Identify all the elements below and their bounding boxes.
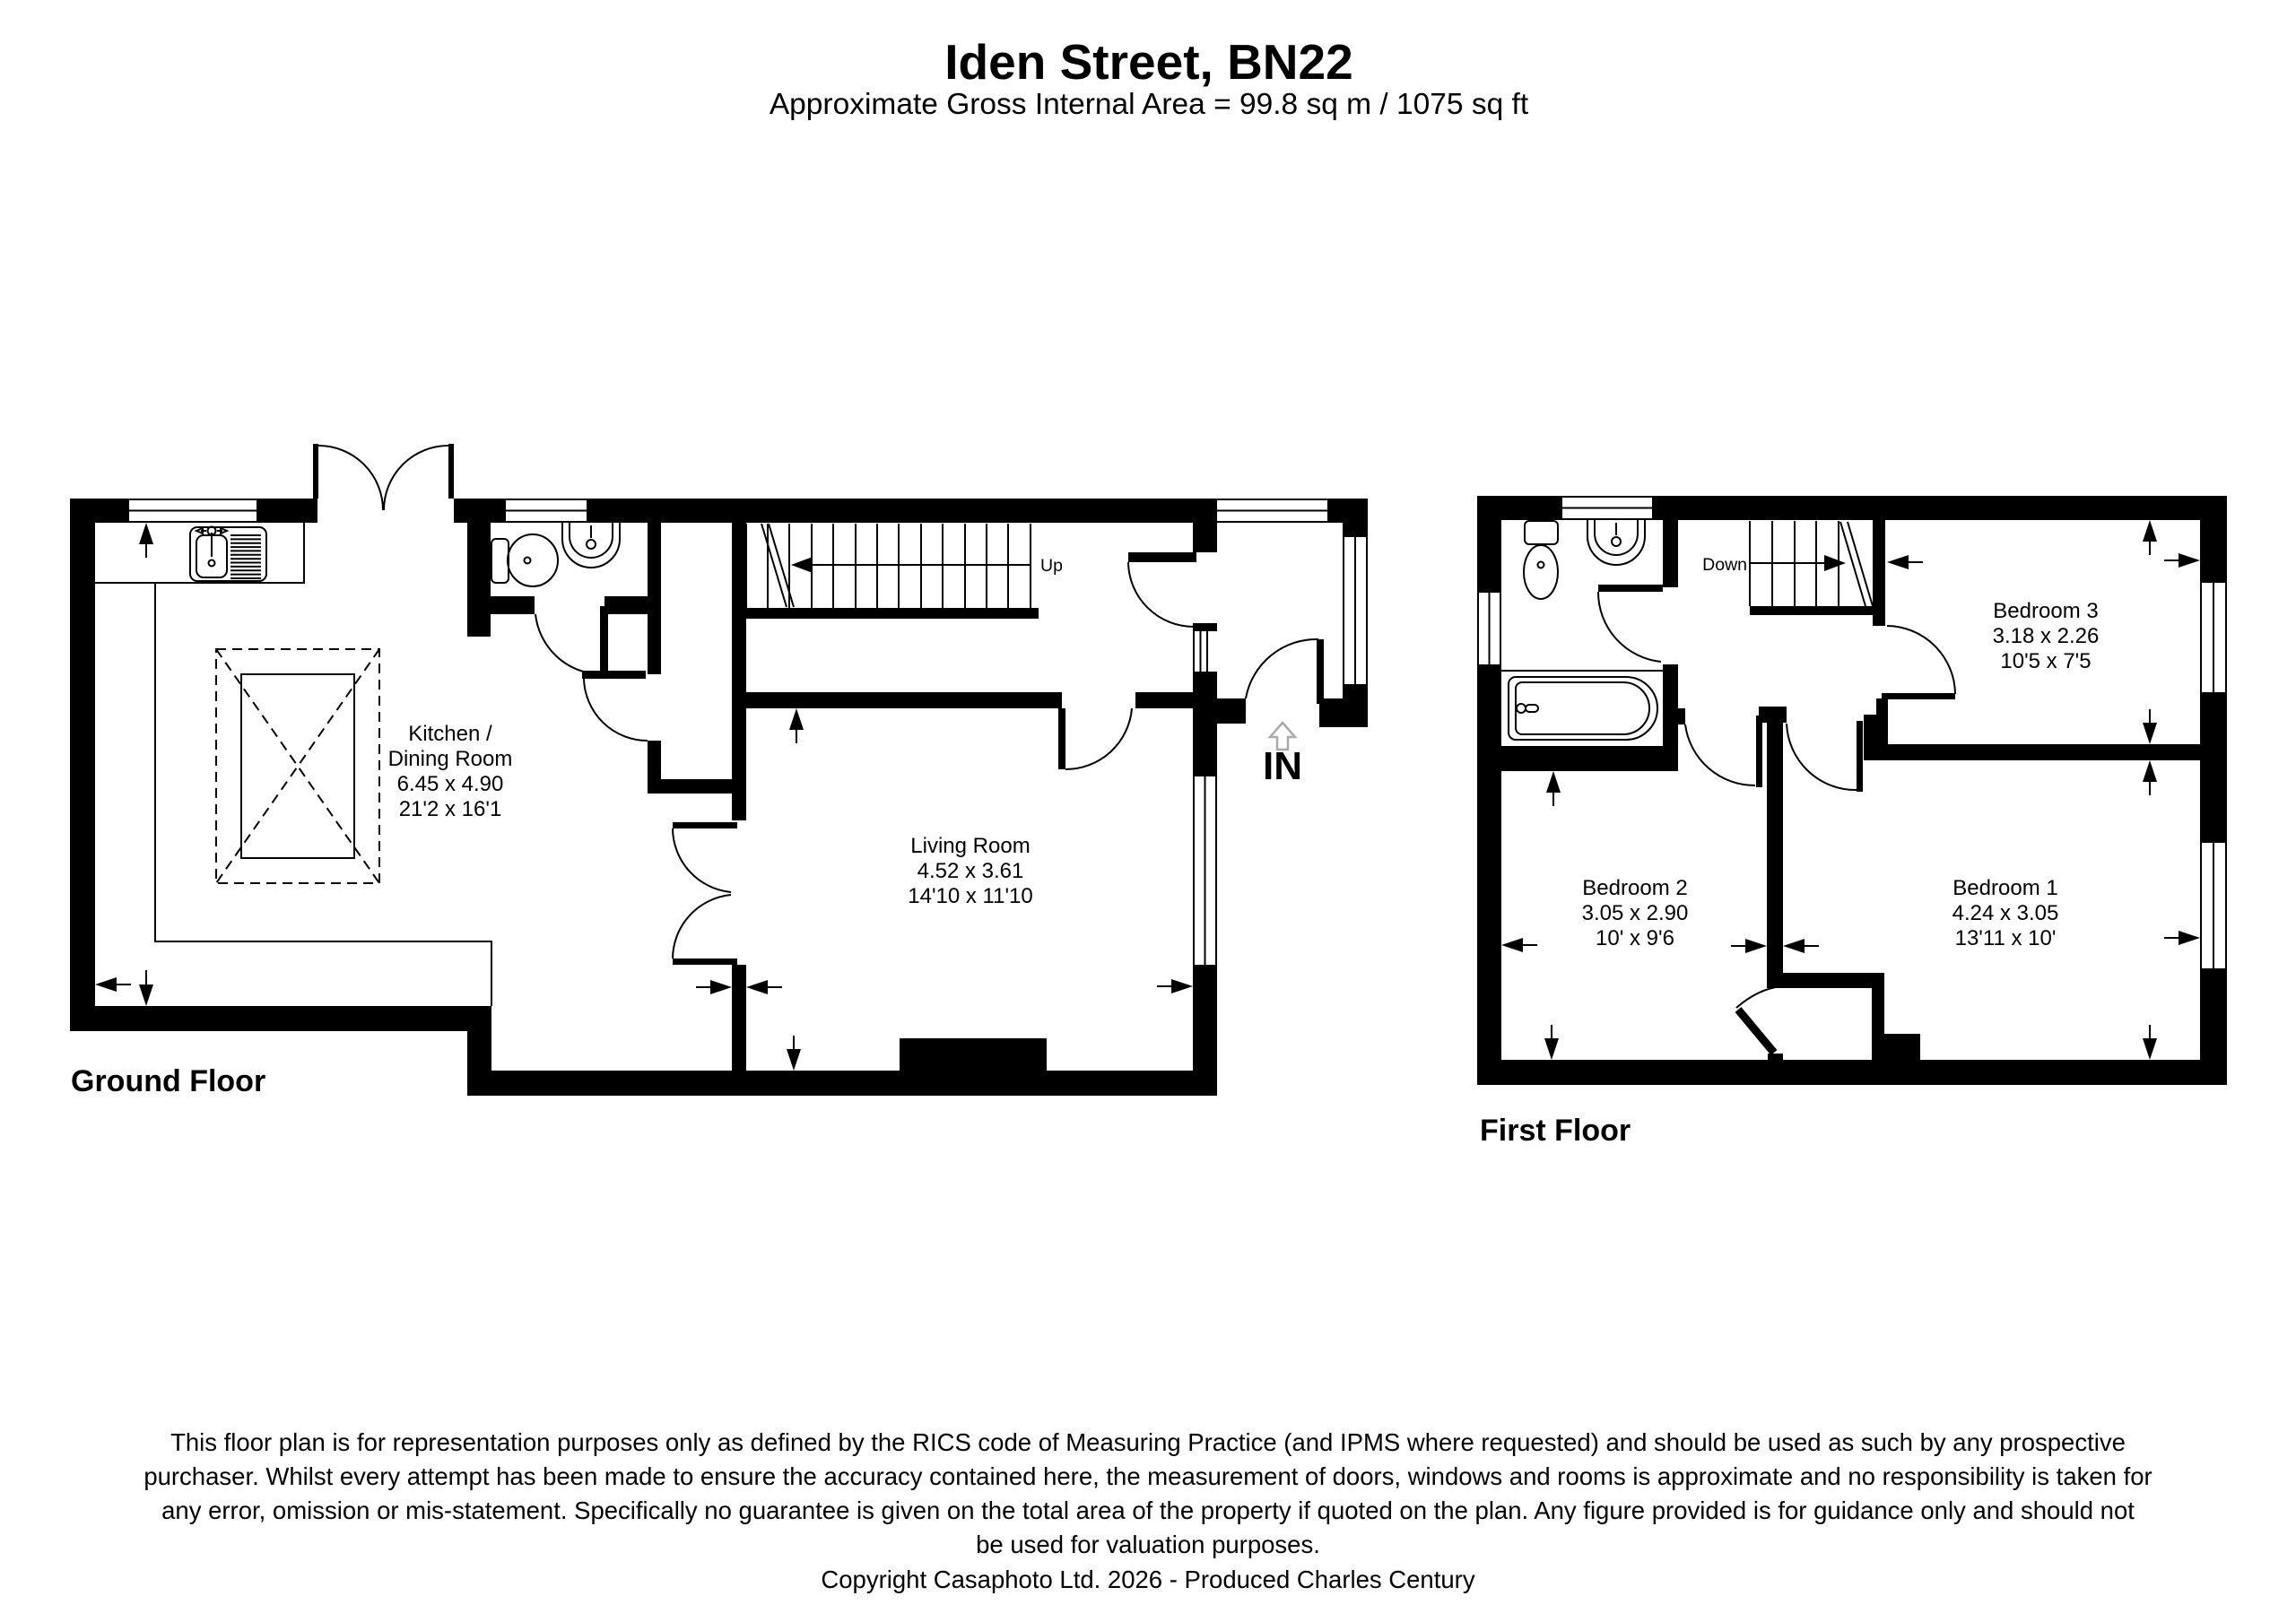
- svg-text:be used for valuation purposes: be used for valuation purposes.: [976, 1531, 1320, 1558]
- svg-text:3.18 x 2.26: 3.18 x 2.26: [1993, 624, 2100, 648]
- svg-text:Dining Room: Dining Room: [388, 747, 513, 771]
- svg-text:Up: Up: [1040, 556, 1063, 576]
- svg-text:Bedroom 3: Bedroom 3: [1993, 599, 2098, 623]
- svg-text:10'5 x 7'5: 10'5 x 7'5: [2000, 649, 2091, 673]
- svg-text:21'2 x 16'1: 21'2 x 16'1: [399, 797, 502, 821]
- svg-text:Kitchen /: Kitchen /: [408, 722, 492, 746]
- svg-text:Copyright Casaphoto Ltd. 2026: Copyright Casaphoto Ltd. 2026 - Produced…: [821, 1566, 1474, 1593]
- svg-text:IN: IN: [1263, 744, 1302, 788]
- svg-text:Bedroom 2: Bedroom 2: [1582, 876, 1687, 900]
- svg-text:3.05 x 2.90: 3.05 x 2.90: [1582, 901, 1689, 925]
- svg-text:Iden Street, BN22: Iden Street, BN22: [944, 34, 1352, 90]
- svg-text:13'11 x 10': 13'11 x 10': [1955, 926, 2057, 950]
- svg-text:Down: Down: [1702, 555, 1747, 575]
- svg-text:4.52 x 3.61: 4.52 x 3.61: [918, 859, 1024, 883]
- svg-text:First Floor: First Floor: [1480, 1114, 1631, 1148]
- svg-text:14'10 x 11'10: 14'10 x 11'10: [908, 884, 1033, 908]
- svg-text:Bedroom 1: Bedroom 1: [1952, 876, 2057, 900]
- svg-text:Ground Floor: Ground Floor: [71, 1064, 265, 1098]
- svg-text:6.45 x 4.90: 6.45 x 4.90: [397, 772, 504, 796]
- svg-text:4.24 x 3.05: 4.24 x 3.05: [1952, 901, 2059, 925]
- svg-text:Approximate Gross Internal Are: Approximate Gross Internal Area = 99.8 s…: [770, 88, 1529, 121]
- svg-text:This floor plan is for represe: This floor plan is for representation pu…: [170, 1428, 2126, 1456]
- svg-text:any error, omission or mis-sta: any error, omission or mis-statement. Sp…: [161, 1496, 2135, 1524]
- svg-text:purchaser. Whilst every attemp: purchaser. Whilst every attempt has been…: [143, 1462, 2152, 1490]
- svg-text:Living Room: Living Room: [910, 834, 1030, 858]
- svg-text:10' x 9'6: 10' x 9'6: [1596, 926, 1674, 950]
